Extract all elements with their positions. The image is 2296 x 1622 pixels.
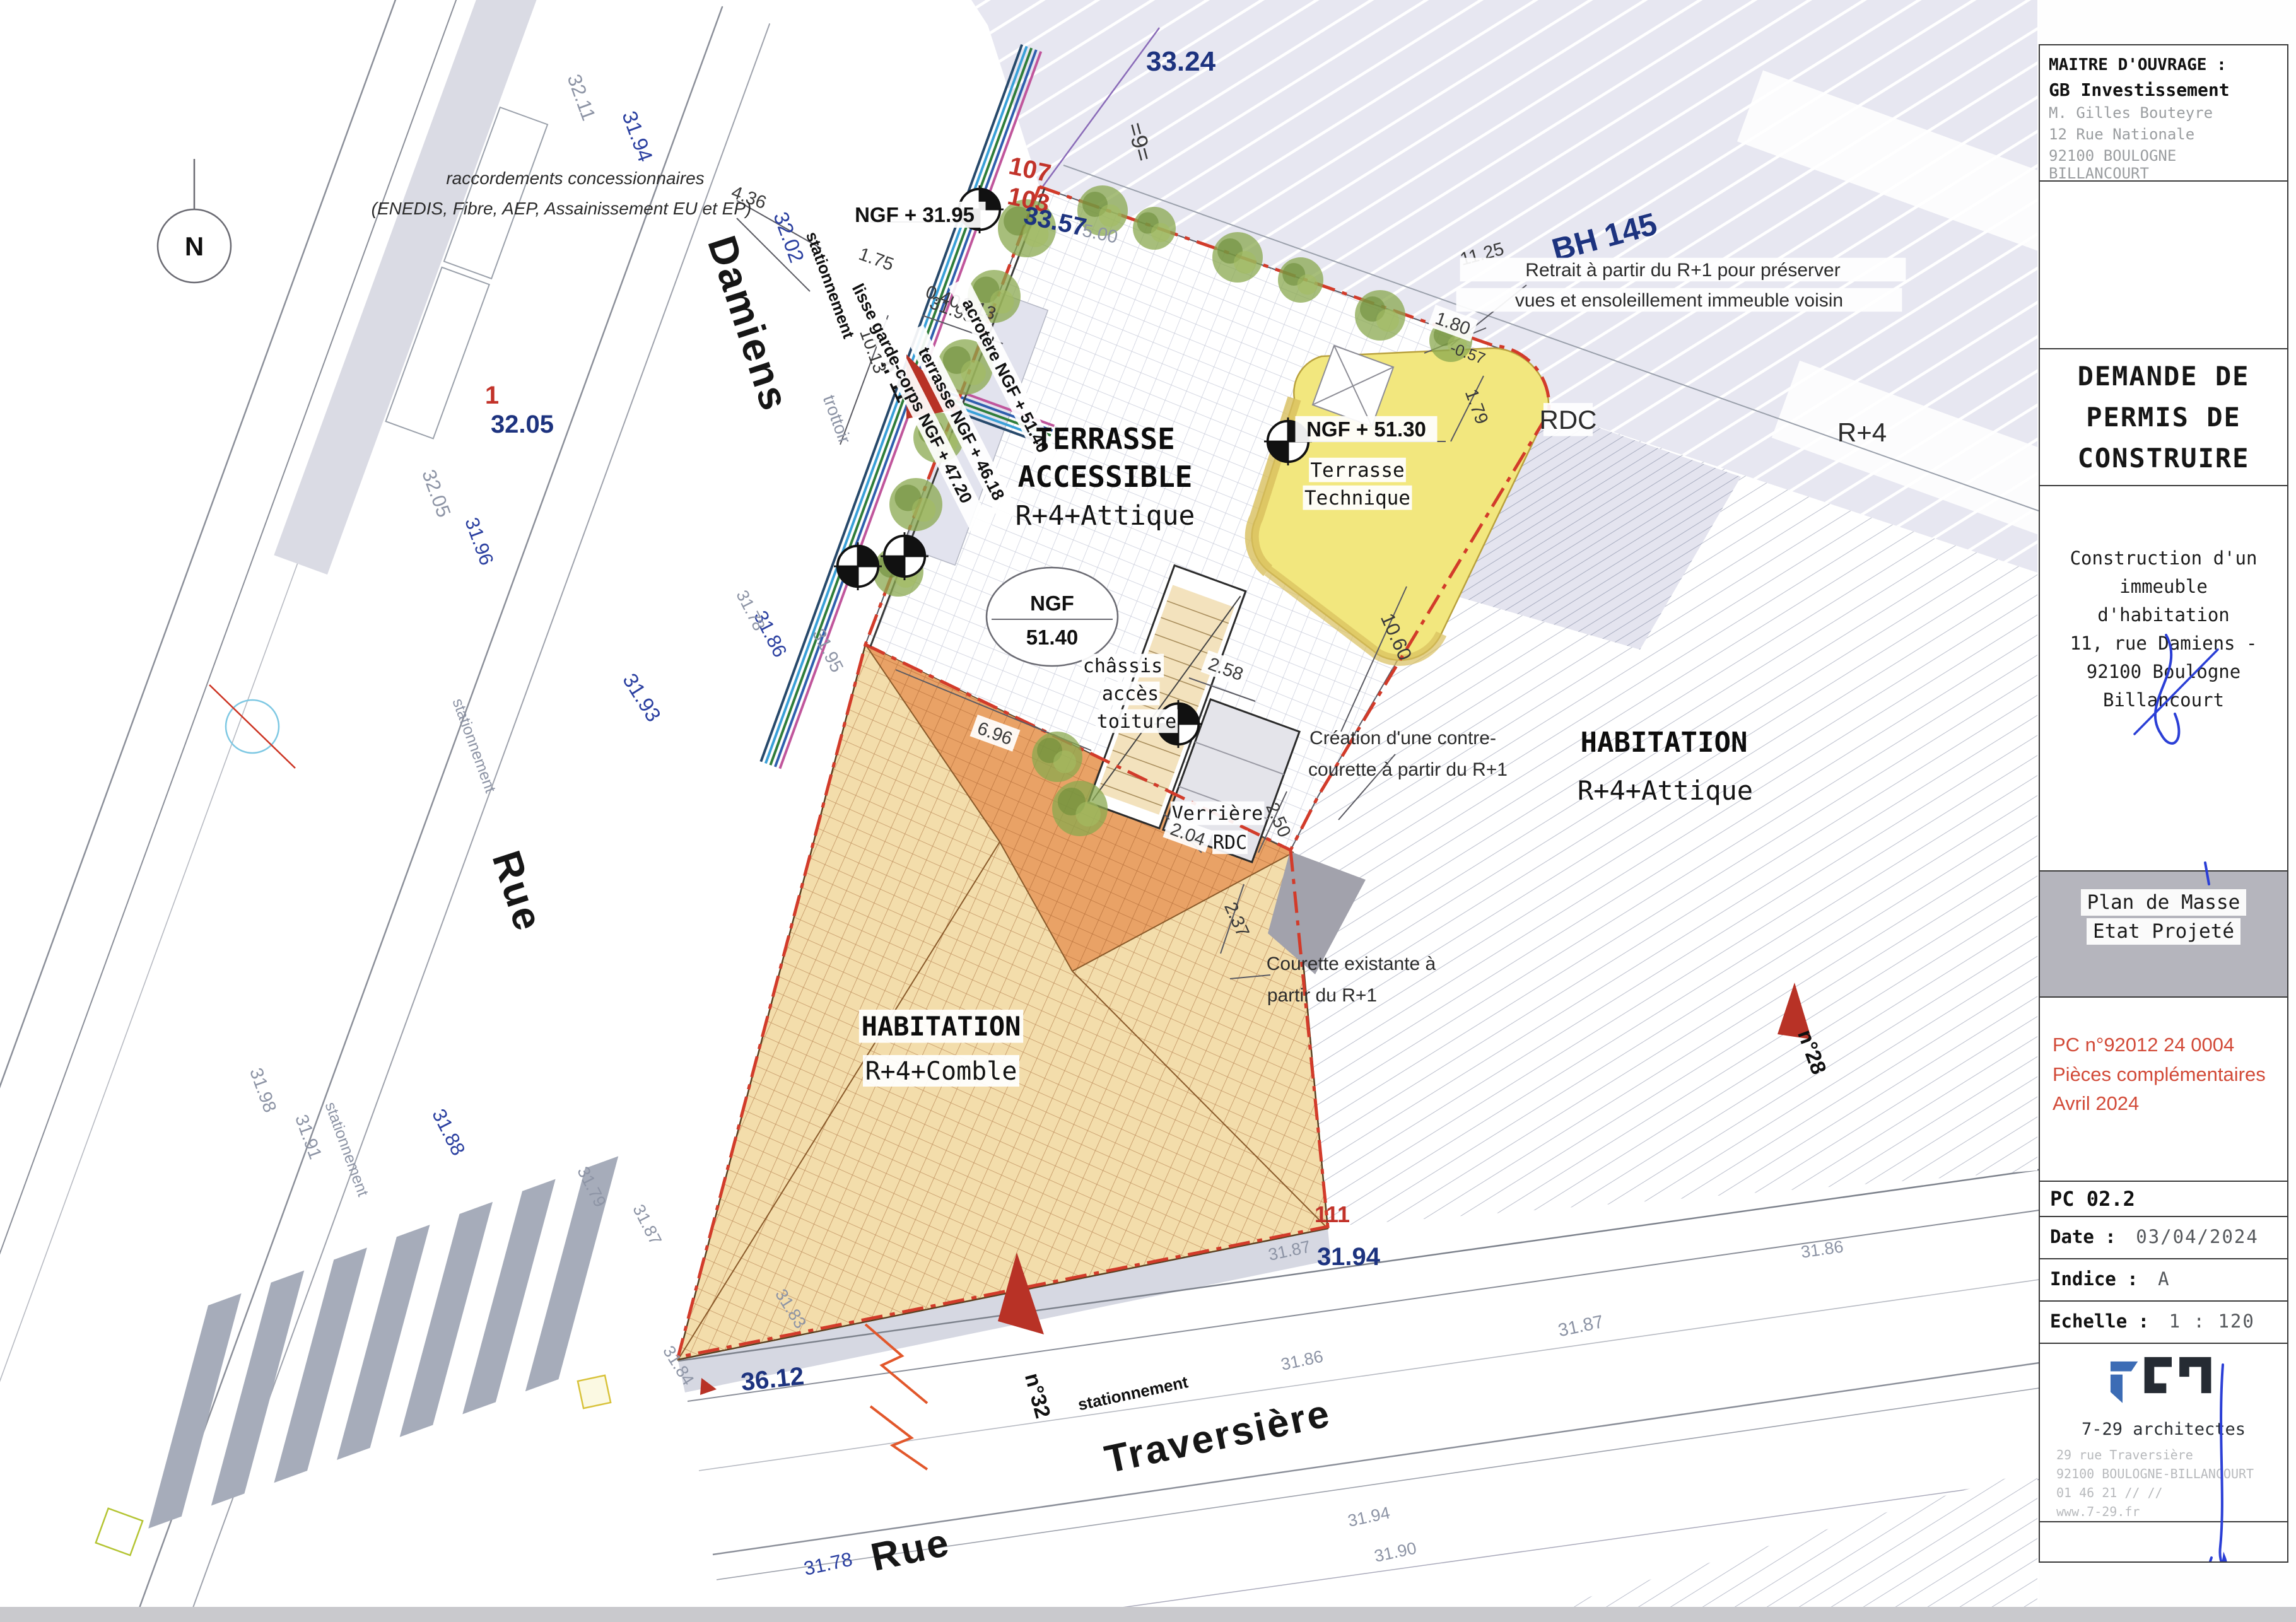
architect-name: 7-29 architectes — [2040, 1420, 2287, 1439]
plan-label: RDC — [1540, 405, 1597, 435]
project-description-box: Construction d'un immeuble d'habitation … — [2040, 486, 2287, 872]
plan-label: châssis — [1083, 655, 1163, 677]
project-line: 11, rue Damiens - — [2040, 629, 2287, 658]
plan-label: Création d'une contre- — [1309, 728, 1496, 749]
scale-label: Echelle : — [2050, 1310, 2149, 1332]
sheet: 33.24NGF + 31.951.7531.954.3632.0232.113… — [0, 0, 2296, 1622]
shrub-icon — [912, 498, 936, 522]
plan-label: NGF + 51.30 — [1306, 417, 1426, 441]
architect-address2: 92100 BOULOGNE-BILLANCOURT — [2056, 1464, 2287, 1483]
shrub-icon — [1151, 223, 1171, 243]
plan-label: 31.94 — [1317, 1243, 1381, 1271]
plan-label: Retrait à partir du R+1 pour préserver — [1525, 260, 1840, 281]
owner-contact: M. Gilles Bouteyre — [2049, 104, 2278, 122]
title-block: MAITRE D'OUVRAGE : GB Investissement M. … — [2039, 44, 2288, 1563]
shrub-icon — [1234, 251, 1256, 274]
plan-label: NGF + 31.95 — [855, 203, 975, 226]
plan-label: HABITATION — [862, 1011, 1021, 1042]
owner-box: MAITRE D'OUVRAGE : GB Investissement M. … — [2040, 45, 2287, 182]
plan-label: 32.05 — [491, 411, 554, 438]
indice-label: Indice : — [2050, 1268, 2138, 1290]
project-line: d'habitation — [2040, 601, 2287, 629]
scan-edge-strip — [0, 1607, 2296, 1622]
plan-label: 33.24 — [1146, 46, 1216, 77]
shrub-icon — [1075, 802, 1101, 827]
plan-label: courette à partir du R+1 — [1308, 759, 1508, 780]
owner-heading: MAITRE D'OUVRAGE : — [2049, 55, 2278, 74]
plan-label: ACCESSIBLE — [1018, 460, 1193, 494]
plan-label: HABITATION — [1581, 726, 1748, 759]
plan-label: R+4+Attique — [1578, 775, 1753, 806]
architect-phone: 01 46 21 // // — [2056, 1483, 2287, 1502]
plan-label: partir du R+1 — [1267, 985, 1377, 1006]
project-line: Construction d'un — [2040, 544, 2287, 573]
plan-label: raccordements concessionnaires — [446, 168, 704, 188]
project-line: Billancourt — [2040, 686, 2287, 715]
empty-box — [2040, 182, 2287, 349]
permit-title-line: PERMIS DE — [2086, 397, 2241, 438]
permit-ref-note: Pièces complémentaires — [2053, 1060, 2287, 1090]
plan-label: TERRASSE — [1035, 422, 1175, 456]
permit-title-box: DEMANDE DE PERMIS DE CONSTRUIRE — [2040, 349, 2287, 486]
scale-value: 1 : 120 — [2169, 1310, 2255, 1332]
plan-label: NGF — [1030, 592, 1074, 615]
project-line: immeuble — [2040, 573, 2287, 601]
date-label: Date : — [2050, 1226, 2116, 1247]
sheet-number-box: PC 02.2 — [2040, 1182, 2287, 1217]
permit-ref-date: Avril 2024 — [2053, 1089, 2287, 1119]
plan-label: 51.40 — [1026, 626, 1079, 649]
scale-row: Echelle : 1 : 120 — [2040, 1302, 2287, 1344]
shrub-icon — [1376, 309, 1399, 332]
ngf-bubble — [987, 568, 1118, 666]
project-line: 92100 Boulogne — [2040, 658, 2287, 686]
plan-label: N — [185, 231, 204, 261]
permit-title-line: CONSTRUIRE — [2078, 438, 2250, 479]
indice-row: Indice : A — [2040, 1259, 2287, 1302]
architect-website: www.7-29.fr — [2056, 1502, 2287, 1521]
plan-label: toiture — [1097, 711, 1176, 733]
plan-label: R+4 — [1837, 417, 1887, 447]
date-row: Date : 03/04/2024 — [2040, 1217, 2287, 1259]
plan-label: 1 — [485, 382, 499, 409]
permit-reference-box: PC n°92012 24 0004 Pièces complémentaire… — [2040, 998, 2287, 1182]
architect-address1: 29 rue Traversière — [2056, 1445, 2287, 1464]
plan-label: R+4+Comble — [865, 1057, 1017, 1086]
plan-label: RDC — [1213, 832, 1247, 854]
plan-label: 111 — [1315, 1201, 1350, 1227]
shrub-icon — [961, 360, 986, 385]
plan-label: accès — [1102, 683, 1159, 705]
document-title-line: Etat Projeté — [2087, 918, 2240, 945]
document-title-line: Plan de Masse — [2081, 889, 2247, 916]
owner-address2: 92100 BOULOGNE BILLANCOURT — [2049, 147, 2278, 182]
sheet-number: PC 02.2 — [2050, 1187, 2135, 1211]
owner-name: GB Investissement — [2049, 79, 2278, 100]
date-value: 03/04/2024 — [2136, 1226, 2259, 1247]
plan-label: Technique — [1304, 487, 1410, 510]
shrub-icon — [1297, 274, 1318, 295]
owner-address1: 12 Rue Nationale — [2049, 125, 2278, 143]
permit-title-line: DEMANDE DE — [2078, 356, 2250, 397]
plan-label: (ENEDIS, Fibre, AEP, Assainissement EU e… — [372, 199, 752, 218]
indice-value: A — [2158, 1268, 2170, 1290]
site-plan-drawing: 33.24NGF + 31.951.7531.954.3632.0232.113… — [0, 0, 2296, 1622]
plan-label: vues et ensoleillement immeuble voisin — [1515, 290, 1843, 311]
plan-label: Terrasse — [1310, 459, 1404, 482]
document-title-band: Plan de Masse Etat Projeté — [2040, 872, 2287, 998]
permit-ref-number: PC n°92012 24 0004 — [2053, 1030, 2287, 1060]
shrub-icon — [1053, 750, 1076, 773]
architect-box: 7-29 architectes 29 rue Traversière 9210… — [2040, 1344, 2287, 1522]
plan-label: R+4+Attique — [1016, 500, 1195, 532]
plan-label: Courette existante à — [1267, 954, 1436, 974]
architect-logo-icon — [2100, 1353, 2227, 1418]
